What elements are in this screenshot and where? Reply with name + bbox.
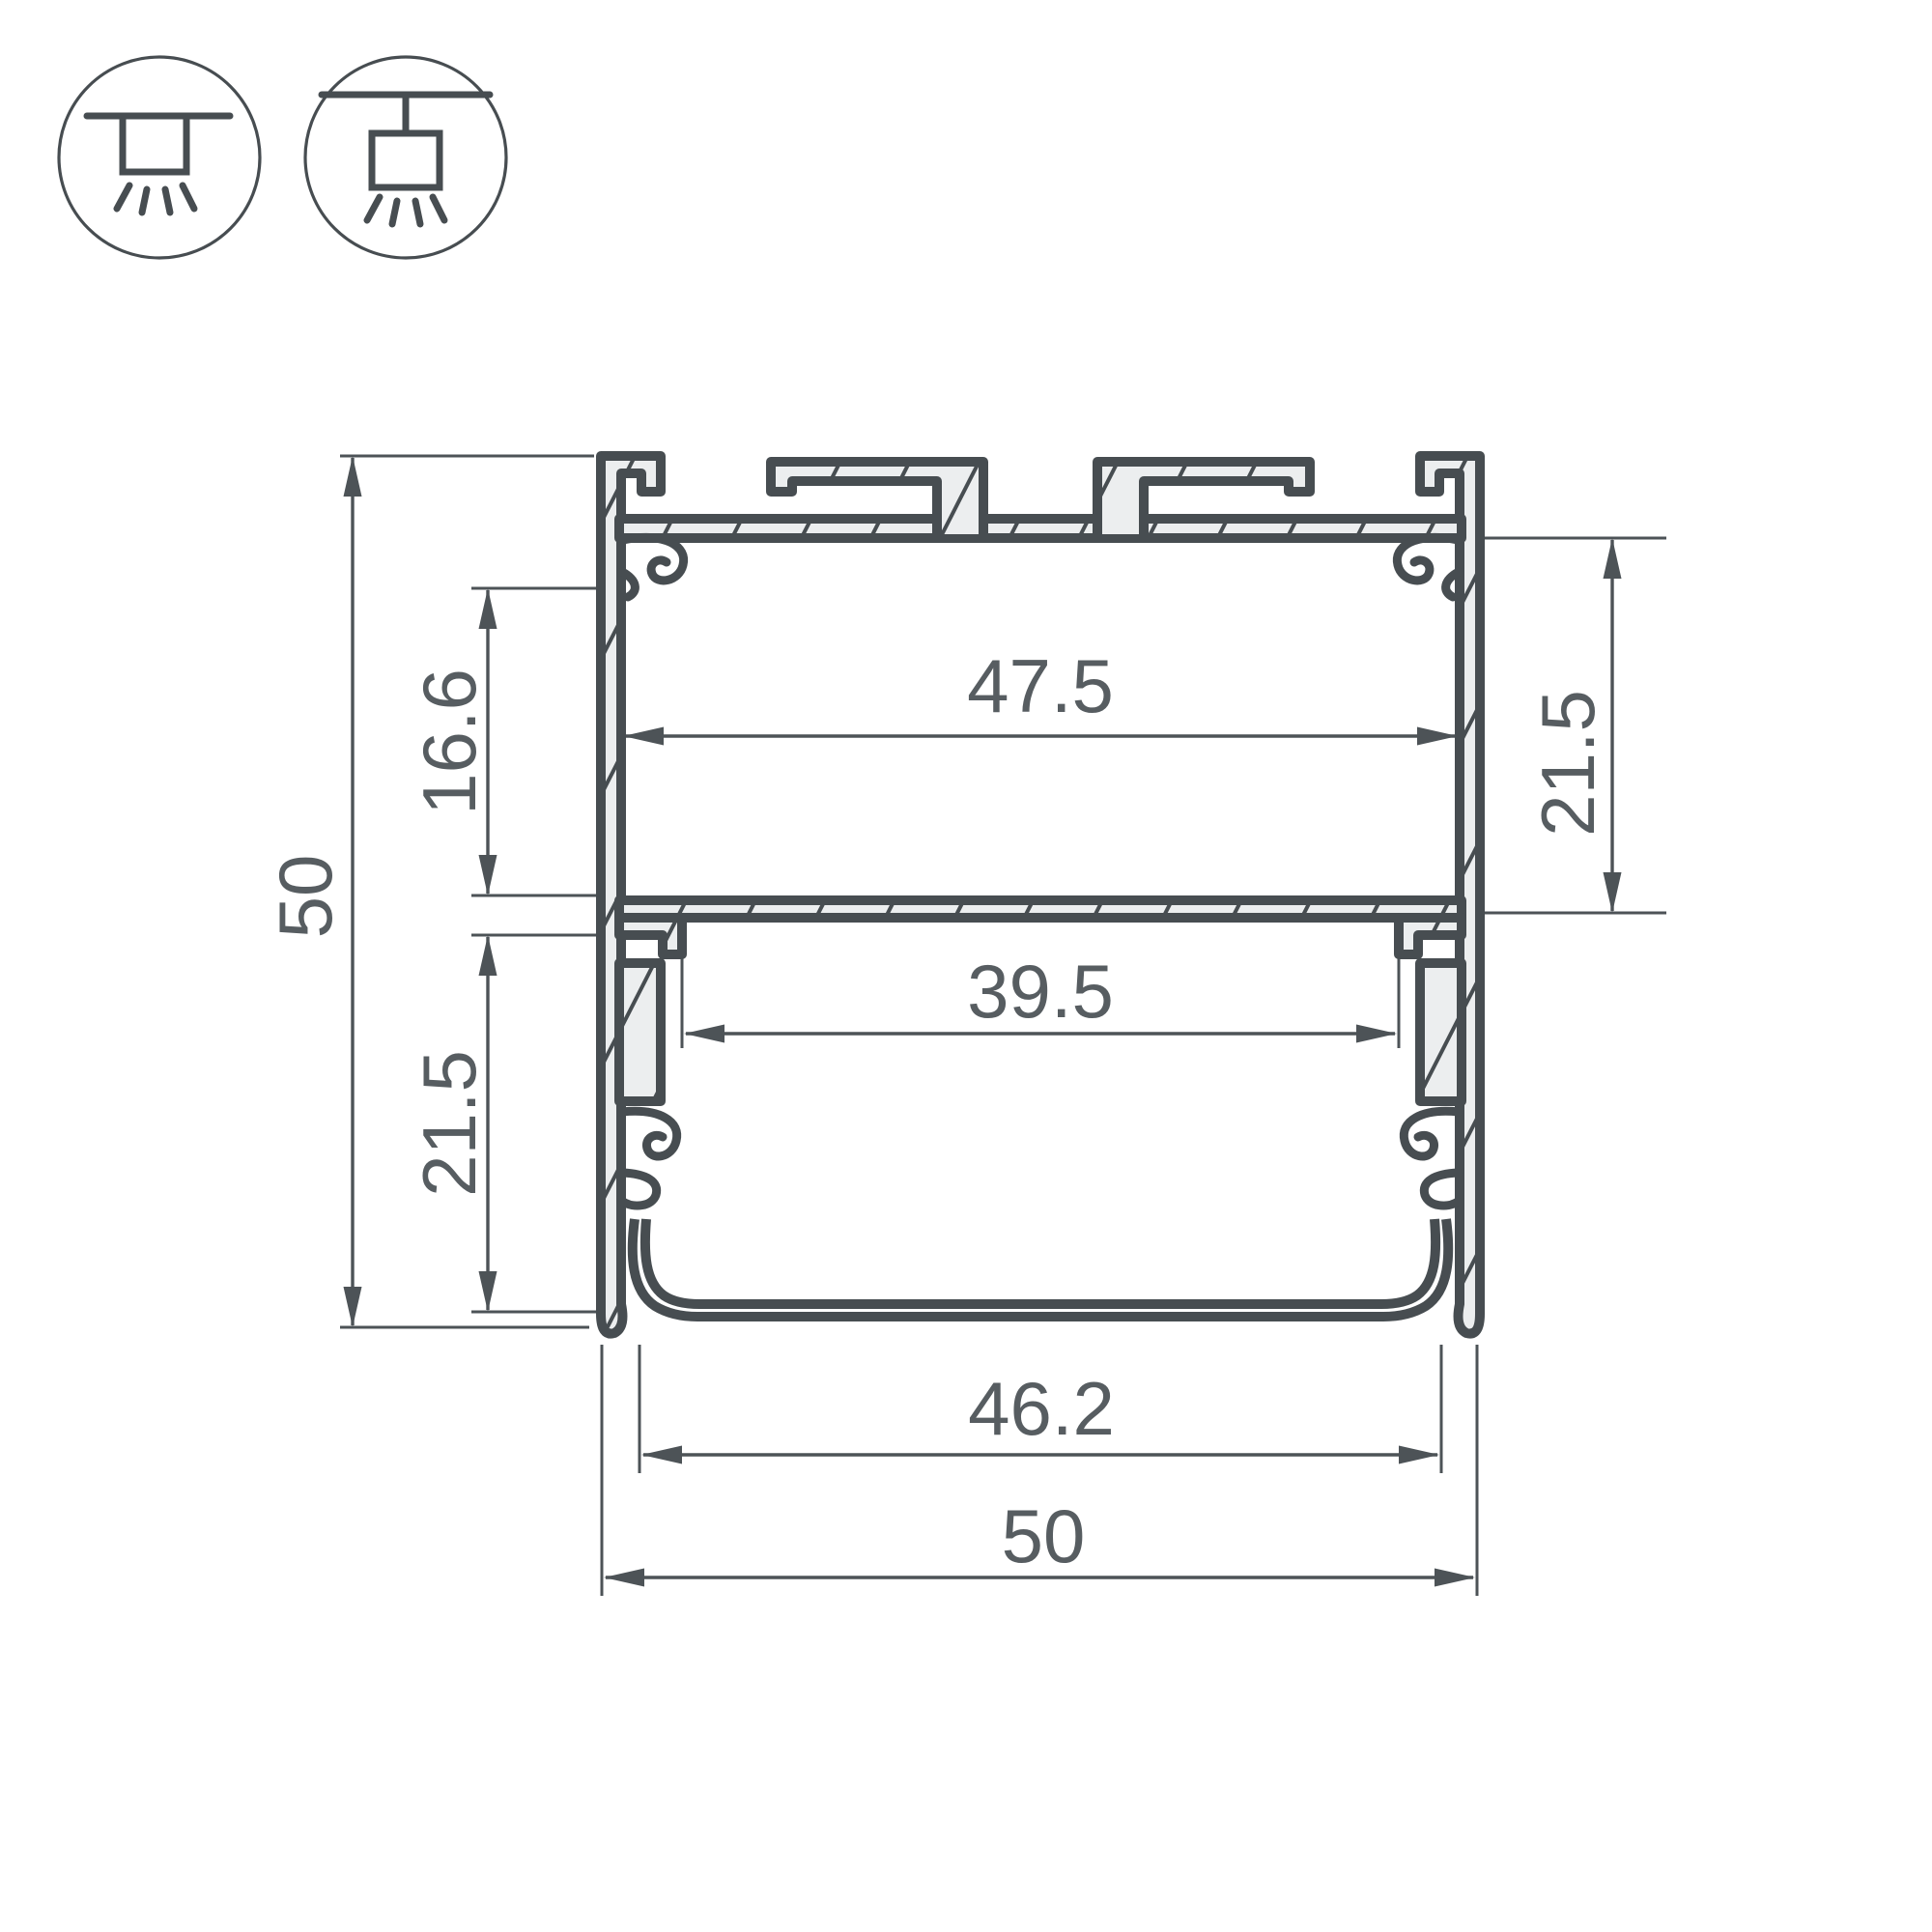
background (0, 0, 1932, 1932)
dim-label-inner-width-top: 47.5 (967, 643, 1114, 728)
luminaire-box (372, 133, 440, 187)
seat-member-left (619, 963, 661, 1101)
dim-label-upper-pocket-height: 16.6 (407, 668, 492, 815)
dim-label-lower-pocket-height: 21.5 (407, 1050, 492, 1197)
dim-label-diffuser-width: 46.2 (968, 1366, 1115, 1451)
center-divider-plate (619, 900, 1462, 918)
seat-member-right (1420, 963, 1462, 1101)
dim-label-side-pocket-height: 21.5 (1525, 690, 1610, 837)
technical-drawing: 50 16.6 21.5 21.5 (0, 0, 1932, 1932)
dim-label-overall-width: 50 (1002, 1493, 1086, 1578)
top-channel-floor (619, 519, 1462, 538)
dim-label-overall-height: 50 (263, 855, 348, 939)
dim-label-inner-width-bottom: 39.5 (967, 949, 1114, 1034)
luminaire-box (123, 116, 186, 172)
